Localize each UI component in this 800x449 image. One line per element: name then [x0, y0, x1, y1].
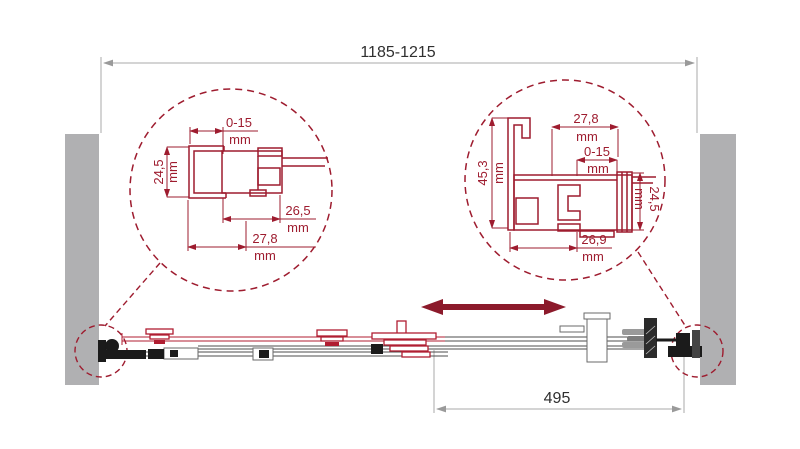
- handle-roller-assembly: [371, 321, 436, 357]
- right-dim-bottom-width-value: 26,9: [581, 232, 606, 247]
- shower-door-plan-drawing: 1185-1215 495 0-15 mm 24,5 mm: [0, 0, 800, 449]
- right-dim-height-value: 45,3: [475, 160, 490, 185]
- overall-width-dimension: 1185-1215: [101, 44, 697, 133]
- technical-drawing-canvas: 1185-1215 495 0-15 mm 24,5 mm: [0, 0, 800, 449]
- right-dim-depth-unit: mm: [632, 188, 647, 210]
- overall-width-label: 1185-1215: [360, 44, 435, 61]
- right-detail-dim-height: 45,3 mm: [475, 118, 508, 228]
- left-roller-carriage: [146, 329, 173, 344]
- right-detail-dim-bottom-width: 26,9 mm: [510, 232, 612, 264]
- glass-clip-core: [259, 350, 269, 358]
- left-detail-profile: [189, 146, 328, 198]
- left-dim-inner-width-value: 26,5: [285, 203, 310, 218]
- center-roller-carriage: [317, 330, 347, 346]
- left-detail-leader-line: [105, 263, 160, 326]
- door-opening-label: 495: [544, 390, 571, 407]
- right-wall-anchor: [656, 330, 702, 358]
- left-dim-depth-value: 24,5: [151, 159, 166, 184]
- left-dim-profile-width-value: 27,8: [252, 231, 277, 246]
- right-detail-dim-depth: 24,5 mm: [632, 173, 662, 230]
- left-dim-adjust-unit: mm: [229, 132, 251, 147]
- door-opening-dimension: 495: [434, 350, 684, 413]
- right-dim-adjust-unit: mm: [587, 161, 609, 176]
- left-dim-profile-width-unit: mm: [254, 248, 276, 263]
- left-dim-depth-unit: mm: [165, 161, 180, 183]
- right-detail-leader-line: [638, 252, 686, 327]
- right-dim-height-unit: mm: [491, 162, 506, 184]
- right-dim-profile-width-value: 27,8: [573, 111, 598, 126]
- right-dim-depth-value: 24,5: [647, 186, 662, 211]
- right-dim-bottom-width-unit: mm: [582, 249, 604, 264]
- left-wall-anchor: [98, 339, 198, 362]
- slide-direction-arrow-icon: [421, 299, 566, 315]
- right-dim-profile-width-unit: mm: [576, 129, 598, 144]
- right-dim-adjust-value: 0-15: [584, 144, 610, 159]
- left-detail-dim-inner-width: 26,5 mm: [223, 195, 316, 235]
- right-detail-dim-adjust: 0-15 mm: [577, 144, 617, 176]
- door-assembly-plan-view: [98, 313, 702, 362]
- left-detail-dim-depth: 24,5 mm: [151, 147, 189, 197]
- left-wall: [65, 134, 99, 385]
- left-dim-adjust-value: 0-15: [226, 115, 252, 130]
- left-dim-inner-width-unit: mm: [287, 220, 309, 235]
- right-roller-stack: [622, 318, 657, 358]
- right-wall: [700, 134, 736, 385]
